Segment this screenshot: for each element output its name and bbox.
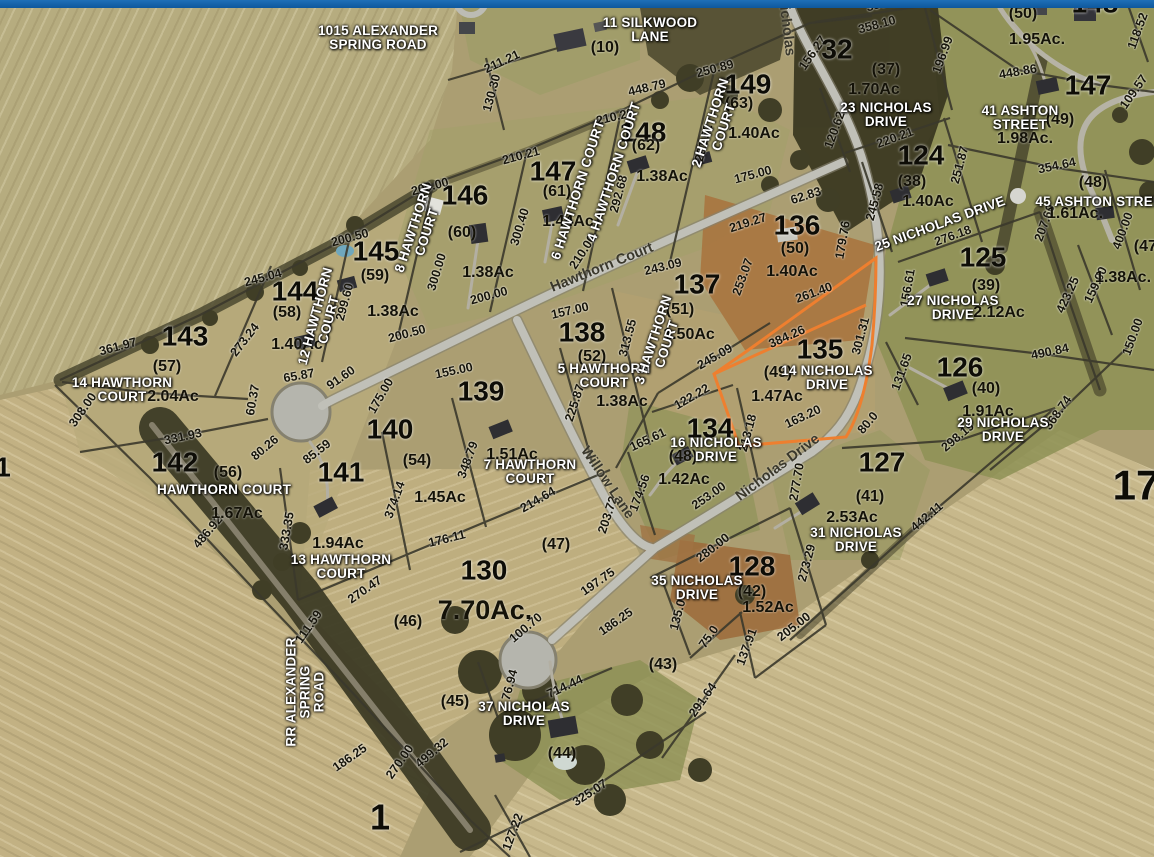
parcel-number: 125 <box>960 244 1007 273</box>
address-label: 35 NICHOLASDRIVE <box>651 574 742 602</box>
address-label: 7 HAWTHORNCOURT <box>484 458 577 486</box>
dimension-label: 122.22 <box>672 382 711 412</box>
dimension-label: 423.25 <box>1054 275 1082 315</box>
lot-number: (39) <box>972 278 1000 294</box>
acreage-label: 1.98Ac. <box>997 131 1053 147</box>
address-label: 27 NICHOLASDRIVE <box>907 294 998 322</box>
address-label: 45 ASHTON STREET <box>1035 195 1154 209</box>
parcel-number: 1 <box>370 800 390 837</box>
dimension-label: 165.61 <box>628 426 668 454</box>
dimension-label: 75.0 <box>697 623 721 650</box>
address-label: HAWTHORN COURT <box>157 483 291 497</box>
acreage-label: 1.38Ac <box>596 394 648 410</box>
dimension-label: 214.64 <box>518 485 557 515</box>
lot-number: (45) <box>441 694 469 710</box>
lot-number: (48) <box>1079 175 1107 191</box>
dimension-label: 270.00 <box>384 743 416 782</box>
acreage-label: 1.67Ac <box>211 506 263 522</box>
acreage-label: 1.38Ac <box>636 169 688 185</box>
lot-number: (59) <box>361 268 389 284</box>
lot-number: (46) <box>394 614 422 630</box>
parcel-number: 124 <box>898 142 945 171</box>
parcel-number: 141 <box>318 459 365 488</box>
lot-number: (37) <box>872 62 900 78</box>
address-label: 23 NICHOLASDRIVE <box>840 101 931 129</box>
dimension-label: 331.93 <box>163 427 203 447</box>
lot-number: (38) <box>898 174 926 190</box>
acreage-label: 1.38Ac <box>367 304 419 320</box>
acreage-label: 1.42Ac <box>658 472 710 488</box>
dimension-label: 65.87 <box>282 367 315 385</box>
lot-number: (62) <box>632 138 660 154</box>
address-label: 14 HAWTHORNCOURT <box>72 376 172 404</box>
dimension-label: 109.57 <box>1118 73 1150 112</box>
address-label: 41 ASHTONSTREET <box>982 104 1059 132</box>
dimension-label: 197.75 <box>579 566 618 598</box>
dimension-label: 325.07 <box>570 777 609 809</box>
dimension-label: 251.87 <box>949 145 971 185</box>
dimension-label: 448.79 <box>627 77 667 98</box>
dimension-label: 76.94 <box>500 668 520 702</box>
lot-number: (50) <box>1009 6 1037 22</box>
acreage-label: 1.38Ac. <box>1095 270 1151 286</box>
dimension-label: 131.65 <box>889 352 914 392</box>
dimension-label: 490.84 <box>1030 342 1070 362</box>
address-label: 16 NICHOLASDRIVE <box>670 436 761 464</box>
dimension-label: 150.00 <box>1120 317 1145 357</box>
dimension-label: 499.32 <box>413 736 450 770</box>
map-canvas[interactable]: 245.04361.97273.24299.60200.50200.50200.… <box>0 0 1154 857</box>
dimension-label: 300.00 <box>425 252 448 292</box>
dimension-label: 448.86 <box>998 62 1038 81</box>
lot-number: (54) <box>403 453 431 469</box>
parcel-number: 127 <box>859 449 906 478</box>
acreage-label: 1.45Ac <box>414 490 466 506</box>
address-label: 1015 ALEXANDERSPRING ROAD <box>318 24 438 52</box>
dimension-label: 137.91 <box>734 627 759 667</box>
dimension-label: 291.64 <box>687 681 719 720</box>
lot-number: (57) <box>153 359 181 375</box>
dimension-label: 273.24 <box>228 321 262 359</box>
parcel-number: 126 <box>937 354 984 383</box>
acreage-label: 1.40Ac <box>728 126 780 142</box>
acreage-label: 1.94Ac <box>312 536 364 552</box>
dimension-label: 186.25 <box>597 606 636 638</box>
parcel-number: 140 <box>367 416 414 445</box>
dimension-label: 200.50 <box>387 323 427 345</box>
lot-number: (47) <box>542 537 570 553</box>
acreage-label: 1.40Ac <box>766 264 818 280</box>
dimension-label: 62.83 <box>789 185 823 207</box>
address-label: 11 SILKWOODLANE <box>603 16 697 44</box>
lot-number: (44) <box>548 746 576 762</box>
parcel-number: 139 <box>458 378 505 407</box>
lot-number: (50) <box>781 241 809 257</box>
dimension-label: 358.10 <box>857 14 897 36</box>
parcel-number: 17 <box>1113 465 1154 508</box>
dimension-label: 253.07 <box>730 257 755 297</box>
address-label: RR ALEXANDERSPRINGROAD <box>284 637 325 746</box>
dimension-label: 163.20 <box>783 403 823 431</box>
dimension-label: 175.00 <box>366 376 396 415</box>
address-label: 29 NICHOLASDRIVE <box>957 416 1048 444</box>
parcel-number: 146 <box>442 182 489 211</box>
address-label: 14 NICHOLASDRIVE <box>781 364 872 392</box>
acreage-label: 2.53Ac <box>826 510 878 526</box>
dimension-label: 374.14 <box>382 480 407 520</box>
dimension-label: 333.35 <box>277 511 296 551</box>
dimension-label: 118.52 <box>1126 11 1151 51</box>
parcel-number: 130 <box>461 557 508 586</box>
address-label: 37 NICHOLASDRIVE <box>478 700 569 728</box>
parcel-number: 136 <box>774 212 821 241</box>
dimension-label: 245.09 <box>695 342 734 372</box>
dimension-label: 400.00 <box>1110 211 1135 251</box>
parcel-number: 147 <box>1065 72 1112 101</box>
address-label: 31 NICHOLASDRIVE <box>810 526 901 554</box>
dimension-label: 176.11 <box>427 528 467 549</box>
parcel-number: 145 <box>353 238 400 267</box>
dimension-label: 179.76 <box>833 220 852 260</box>
address-label: 13 HAWTHORNCOURT <box>291 553 391 581</box>
dimension-label: 91.60 <box>325 364 358 392</box>
acreage-label: 7.70Ac. <box>438 597 533 625</box>
parcel-number: 137 <box>674 271 721 300</box>
top-bar <box>0 0 1154 8</box>
dimension-label: 300.40 <box>508 207 531 247</box>
dimension-label: 80.0 <box>855 410 880 437</box>
dimension-label: 80.26 <box>249 433 281 463</box>
acreage-label: 1.52Ac <box>742 600 794 616</box>
parcel-number: 142 <box>152 449 199 478</box>
dimension-label: 60.37 <box>244 383 262 416</box>
lot-number: (58) <box>273 305 301 321</box>
lot-number: (56) <box>214 465 242 481</box>
dimension-label: 130.30 <box>481 73 503 113</box>
dimension-label: 348.79 <box>455 440 480 480</box>
acreage-label: 1.70Ac <box>848 82 900 98</box>
lot-number: (60) <box>448 225 476 241</box>
dimension-label: 245.58 <box>864 182 886 222</box>
lot-number: (40) <box>972 381 1000 397</box>
parcel-number: 32 <box>821 36 852 65</box>
dimension-label: 442.11 <box>909 500 946 534</box>
lot-number: (47) <box>1134 239 1154 255</box>
acreage-label: 1.38Ac <box>462 265 514 281</box>
dimension-label: 219.27 <box>728 211 768 235</box>
dimension-label: 354.64 <box>1037 156 1077 176</box>
dimension-label: 211.21 <box>482 48 521 75</box>
parcel-number: 1 <box>0 454 11 483</box>
acreage-label: 1.95Ac. <box>1009 32 1065 48</box>
dimension-label: 186.25 <box>331 742 370 774</box>
map-labels: 245.04361.97273.24299.60200.50200.50200.… <box>0 0 1154 857</box>
parcel-number: 143 <box>162 323 209 352</box>
dimension-label: 127.22 <box>500 812 525 852</box>
dimension-label: 200.00 <box>469 285 509 307</box>
dimension-label: 261.40 <box>794 280 834 305</box>
dimension-label: 175.00 <box>733 164 773 186</box>
acreage-label: 1.40Ac <box>902 194 954 210</box>
lot-number: (43) <box>649 657 677 673</box>
parcel-number: 135 <box>797 336 844 365</box>
street-name-label: Nicholas <box>775 0 797 57</box>
dimension-label: 135.0 <box>668 598 688 632</box>
dimension-label: 280.00 <box>694 531 732 565</box>
dimension-label: 313.55 <box>617 318 639 358</box>
dimension-label: 301.31 <box>850 316 872 356</box>
lot-number: (41) <box>856 489 884 505</box>
dimension-label: 196.99 <box>930 35 955 75</box>
dimension-label: 361.97 <box>98 336 138 358</box>
dimension-label: 714.44 <box>545 673 585 701</box>
parcel-number: 138 <box>559 319 606 348</box>
